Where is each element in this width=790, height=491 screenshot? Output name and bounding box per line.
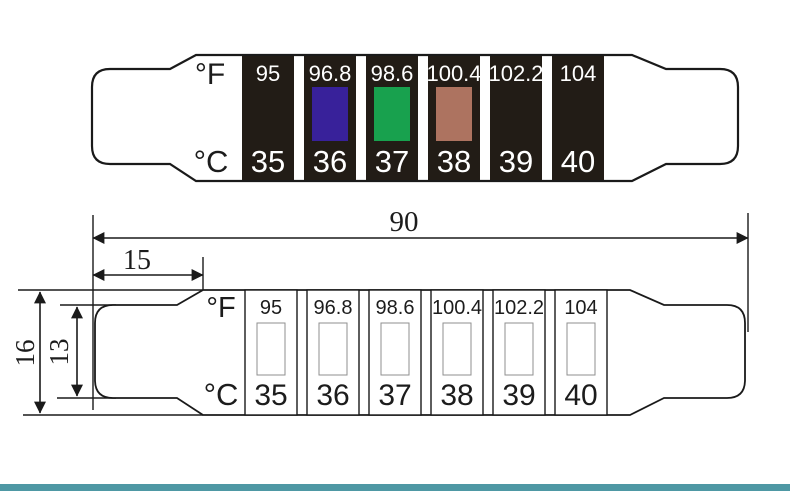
footer-accent-bar — [0, 484, 790, 491]
c-value: 35 — [251, 144, 285, 179]
f-value: 102.2 — [488, 61, 543, 86]
drawing-window — [381, 323, 409, 375]
f-value: 98.6 — [376, 297, 415, 319]
c-value: 37 — [375, 144, 409, 179]
f-value: 95 — [256, 61, 280, 86]
c-value: 40 — [561, 144, 595, 179]
dimension-drawing: 90 15 16 13 °F °C 95 96.8 98.6 100.4 102… — [10, 206, 748, 415]
f-value: 98.6 — [371, 61, 414, 86]
indicator-window-36 — [312, 87, 348, 141]
f-value: 104 — [560, 61, 597, 86]
f-value: 100.4 — [432, 297, 482, 319]
drawing-window — [567, 323, 595, 375]
drawing-window — [443, 323, 471, 375]
f-value: 100.4 — [426, 61, 481, 86]
c-value: 39 — [502, 379, 535, 412]
f-value: 102.2 — [494, 297, 544, 319]
thermometer-strip-diagram: °F °C 95 96.8 98.6 100.4 102.2 104 35 36… — [0, 0, 790, 491]
c-value: 35 — [254, 379, 287, 412]
celsius-unit-label: °C — [204, 377, 239, 412]
indicator-window-37 — [374, 87, 410, 141]
drawing-window — [319, 323, 347, 375]
drawing-window — [505, 323, 533, 375]
f-value: 104 — [564, 297, 597, 319]
fahrenheit-unit-label: °F — [195, 58, 225, 91]
c-value: 39 — [499, 144, 533, 179]
dimension-tab-width: 13 — [44, 339, 74, 366]
f-value: 96.8 — [309, 61, 352, 86]
c-value: 36 — [313, 144, 347, 179]
dimension-tab-length: 15 — [123, 245, 151, 276]
c-value: 37 — [378, 379, 411, 412]
fahrenheit-unit-label: °F — [206, 292, 235, 324]
dimension-total-length: 90 — [390, 206, 419, 238]
f-value: 96.8 — [314, 297, 353, 319]
dimension-body-width: 16 — [10, 340, 40, 367]
colored-strip: °F °C 95 96.8 98.6 100.4 102.2 104 35 36… — [92, 55, 738, 181]
celsius-unit-label: °C — [194, 144, 229, 179]
c-value: 36 — [316, 379, 349, 412]
c-value: 40 — [564, 379, 597, 412]
indicator-window-38 — [436, 87, 472, 141]
drawing-window — [257, 323, 285, 375]
diagram-svg: °F °C 95 96.8 98.6 100.4 102.2 104 35 36… — [0, 0, 790, 491]
f-value: 95 — [260, 297, 282, 319]
c-value: 38 — [437, 144, 471, 179]
c-value: 38 — [440, 379, 473, 412]
